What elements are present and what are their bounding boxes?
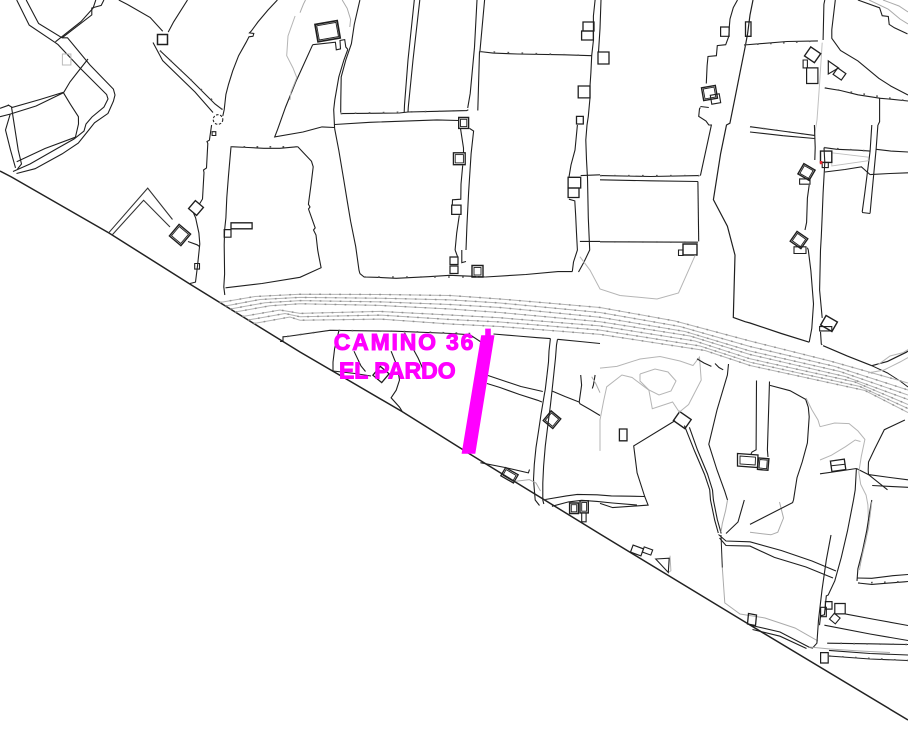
svg-text:EL PARDO: EL PARDO: [339, 357, 456, 383]
svg-text:CAMINO 36: CAMINO 36: [334, 329, 475, 355]
